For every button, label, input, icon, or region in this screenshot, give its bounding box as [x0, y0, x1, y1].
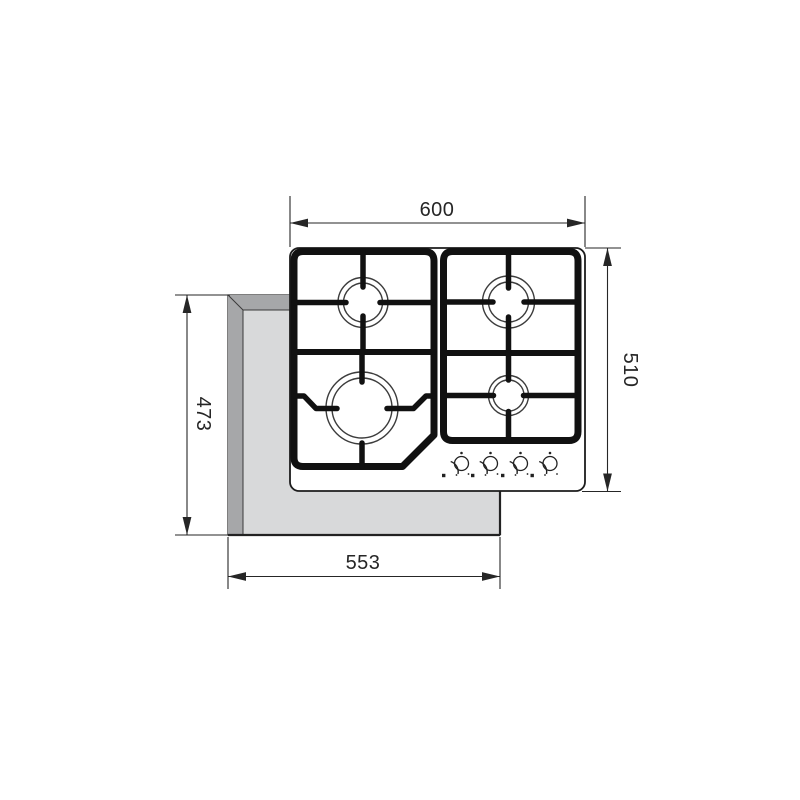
arrowhead-up — [603, 248, 612, 266]
arrowhead-up — [183, 295, 192, 313]
cutout-width-label: 553 — [346, 552, 381, 574]
hob-width-label: 600 — [420, 199, 455, 221]
dimension-hob-width: 600 — [290, 196, 585, 247]
arrowhead-right — [482, 572, 500, 581]
dimension-cutout-depth: 473 — [175, 295, 230, 535]
arrowhead-right — [567, 219, 585, 228]
installation-diagram: 600 510 473 553 — [0, 0, 800, 800]
dimension-hob-depth: 510 — [582, 248, 641, 492]
arrowhead-down — [603, 474, 612, 492]
hob-depth-label: 510 — [619, 353, 641, 388]
diagram-canvas: 600 510 473 553 — [0, 0, 800, 800]
arrowhead-left — [290, 219, 308, 228]
arrowhead-left — [228, 572, 246, 581]
dimension-cutout-width: 553 — [228, 537, 500, 589]
arrowhead-down — [183, 517, 192, 535]
cutout-depth-label: 473 — [192, 397, 214, 432]
